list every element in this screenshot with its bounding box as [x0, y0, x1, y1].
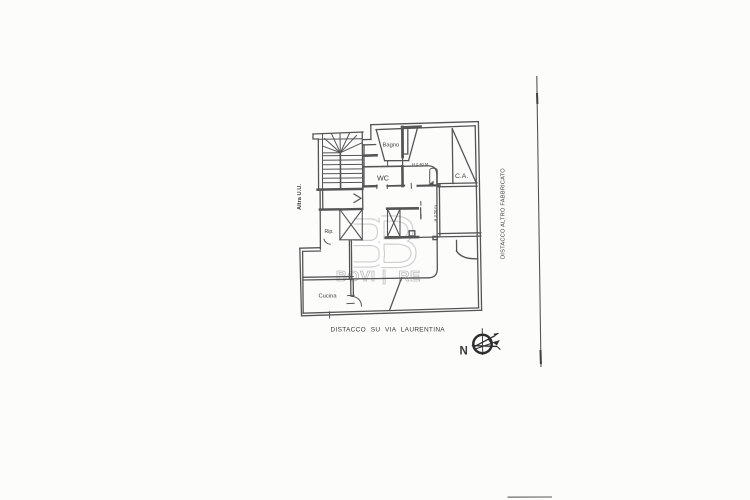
svg-text:RE: RE — [399, 268, 421, 285]
svg-text:H 2.40 M: H 2.40 M — [412, 162, 428, 167]
svg-text:Altra U.U.: Altra U.U. — [297, 184, 303, 210]
svg-text:Bagno: Bagno — [383, 142, 400, 148]
svg-text:WC: WC — [377, 174, 389, 183]
svg-text:Rip.: Rip. — [325, 229, 334, 235]
svg-text:H 3.50 m: H 3.50 m — [433, 205, 438, 222]
svg-text:N: N — [460, 346, 468, 358]
svg-text:Cucina: Cucina — [319, 294, 338, 300]
svg-text:DISTACCO SU VIA LAURENTINA: DISTACCO SU VIA LAURENTINA — [331, 327, 446, 334]
svg-text:C.A.: C.A. — [455, 173, 468, 180]
svg-text:|: | — [382, 268, 387, 285]
svg-text:DISTACCO ALTRO FABBRICATO: DISTACCO ALTRO FABBRICATO — [501, 168, 507, 259]
